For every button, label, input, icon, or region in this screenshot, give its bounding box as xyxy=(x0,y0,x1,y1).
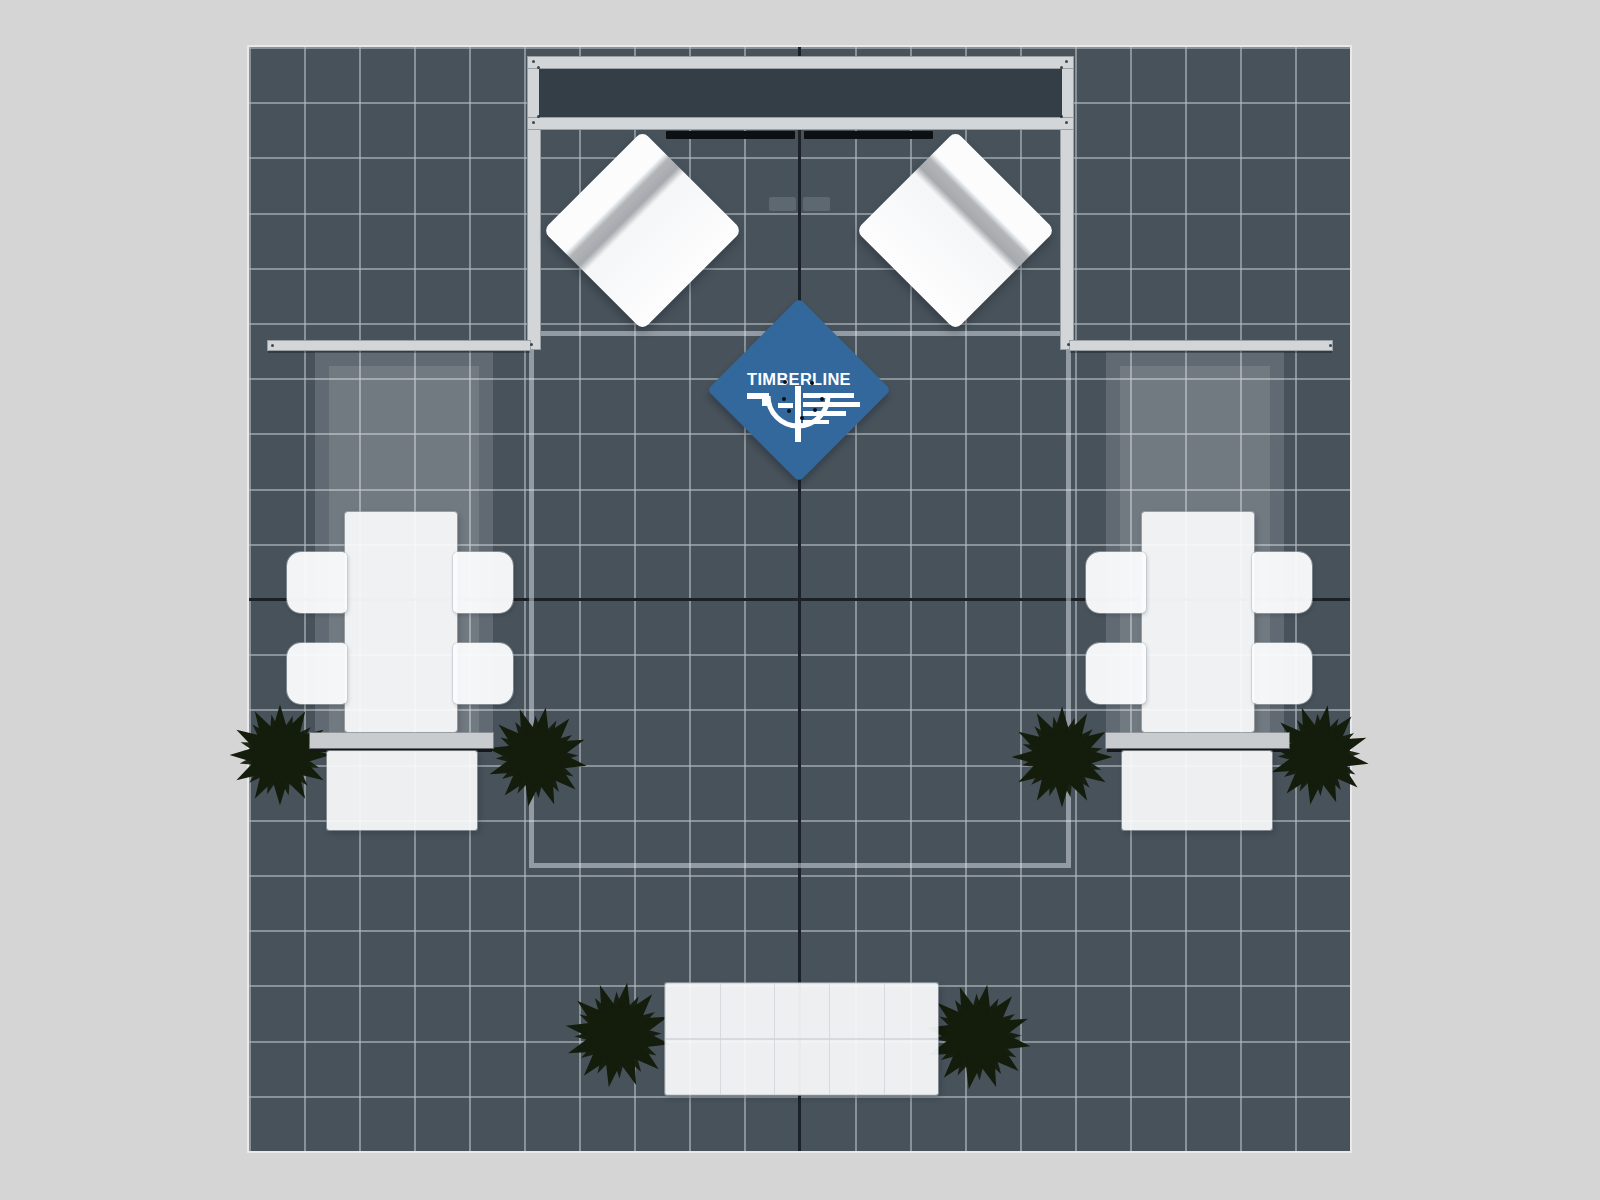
connector-dot xyxy=(537,66,540,69)
chair xyxy=(1086,552,1146,613)
light-bar-left xyxy=(666,131,795,139)
connector-dot xyxy=(1060,115,1063,118)
planter xyxy=(225,700,335,810)
connector-dot xyxy=(537,115,540,118)
connector-dot xyxy=(1329,344,1332,347)
chair xyxy=(1252,643,1312,704)
connector-dot xyxy=(532,60,535,63)
side-beam-right xyxy=(1070,341,1332,350)
light-bar-right xyxy=(804,131,933,139)
booth-floorplan: TIMBERLINE xyxy=(0,0,1600,1200)
chair xyxy=(287,552,347,613)
reception-counter xyxy=(665,983,938,1095)
chair xyxy=(1086,643,1146,704)
side-beam-left xyxy=(268,341,530,350)
header-frame-top xyxy=(528,57,1073,68)
logo-dot xyxy=(800,416,804,420)
logo-dot xyxy=(783,380,787,384)
logo-dot xyxy=(787,409,791,413)
logo-dot xyxy=(782,397,786,401)
chair xyxy=(287,643,347,704)
chair xyxy=(453,643,513,704)
logo-dot xyxy=(813,408,817,412)
timberline-logo: TIMBERLINE xyxy=(729,372,869,448)
logo-dot xyxy=(810,381,814,385)
connector-dot xyxy=(1067,343,1070,346)
connector-dot xyxy=(532,121,535,124)
header-frame-bottom xyxy=(528,118,1073,129)
logo-dot xyxy=(820,397,824,401)
connector-dot xyxy=(530,343,533,346)
chair xyxy=(453,552,513,613)
connector-dot xyxy=(1060,66,1063,69)
ceiling-tab xyxy=(803,197,830,211)
connector-dot xyxy=(271,344,274,347)
side-counter-right xyxy=(1122,751,1272,830)
meeting-table-left xyxy=(345,512,457,732)
logo-mark-icon xyxy=(747,386,863,446)
meeting-table-right xyxy=(1142,512,1254,732)
ceiling-tab xyxy=(769,197,796,211)
connector-dot xyxy=(1065,121,1068,124)
counter-shelf-right xyxy=(1106,733,1289,748)
truss-post-right xyxy=(1061,57,1073,349)
header-sign-panel xyxy=(539,67,1062,119)
chair xyxy=(1252,552,1312,613)
connector-dot xyxy=(1065,60,1068,63)
side-counter-left xyxy=(327,751,477,830)
counter-shelf-left xyxy=(310,733,493,748)
